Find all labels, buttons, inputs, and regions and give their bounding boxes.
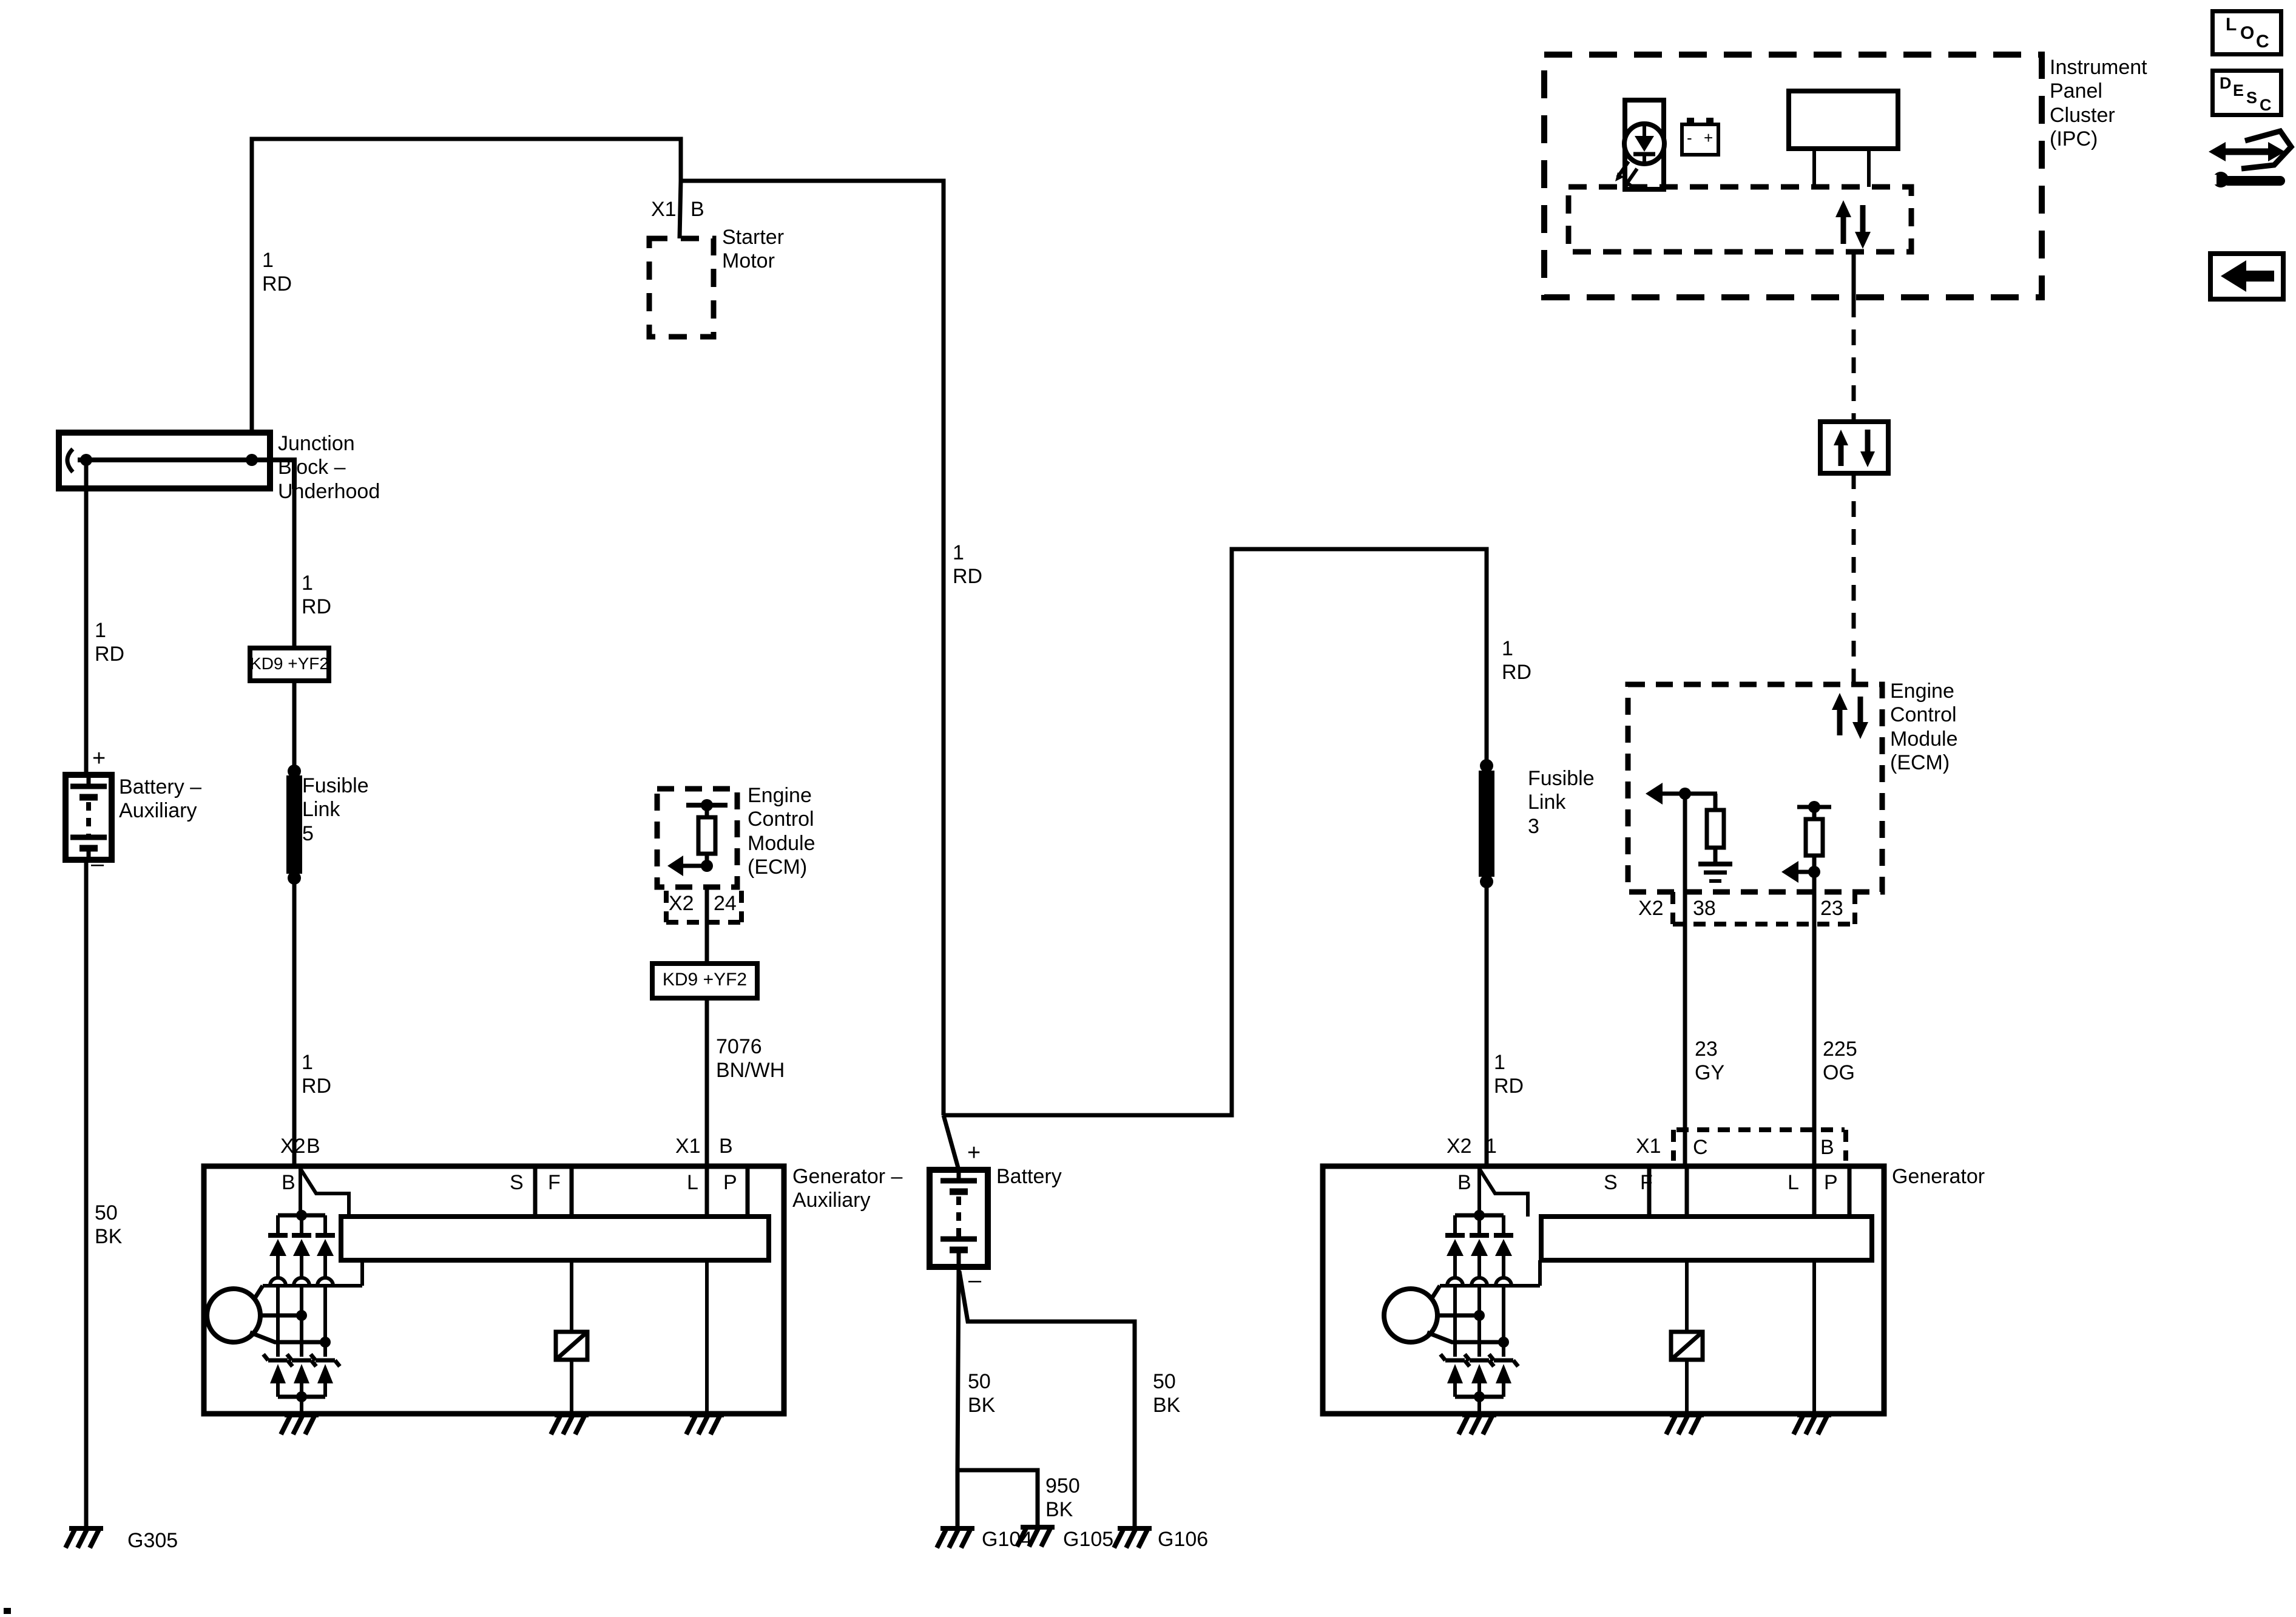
aux-term-f: F bbox=[548, 1171, 561, 1195]
wire-label-50bk-right: 50 BK bbox=[1153, 1370, 1180, 1418]
genaux-x1: X1 bbox=[675, 1135, 701, 1158]
starter-motor-box bbox=[649, 238, 714, 337]
generator-right bbox=[1323, 1166, 1884, 1414]
genr-b: B bbox=[1820, 1136, 1834, 1160]
desc-letter-s: S bbox=[2246, 89, 2257, 107]
wire-label-23gy: 23 GY bbox=[1695, 1038, 1724, 1085]
wire-label-rd-aux: 1 RD bbox=[95, 619, 124, 667]
wire-label-7076: 7076 BN/WH bbox=[716, 1035, 785, 1083]
junction-block-underhood bbox=[59, 433, 294, 489]
aux-term-p: P bbox=[723, 1171, 737, 1195]
r-term-p: P bbox=[1824, 1171, 1838, 1195]
aux-term-s: S bbox=[510, 1171, 524, 1195]
genr-1: 1 bbox=[1485, 1135, 1497, 1158]
generator-auxiliary bbox=[204, 1166, 784, 1414]
ground-label-g105: G105 bbox=[1063, 1528, 1113, 1551]
wire-label-50bk-left: 50 BK bbox=[95, 1201, 122, 1249]
wire-label-rd-main: 1 RD bbox=[953, 541, 982, 589]
kd9-left-label: KD9 +YF2 bbox=[250, 654, 329, 673]
ground-label-g305: G305 bbox=[127, 1529, 178, 1553]
fl3-label: Fusible Link 3 bbox=[1528, 767, 1595, 839]
battery-plus: + bbox=[967, 1139, 981, 1166]
r-term-f: F bbox=[1640, 1171, 1653, 1195]
wire-label-50bk-mid: 50 BK bbox=[968, 1370, 995, 1418]
loc-letter-c: C bbox=[2256, 32, 2269, 52]
genaux-x2: X2 bbox=[280, 1135, 306, 1158]
generator-label: Generator bbox=[1892, 1165, 1985, 1189]
desc-button[interactable]: D E S C bbox=[2210, 69, 2283, 117]
ecmr-x2: X2 bbox=[1638, 897, 1664, 920]
wiring-diagram-page: Instrument Panel Cluster (IPC) Starter M… bbox=[0, 0, 2296, 1617]
diagnostic-tool-icon[interactable] bbox=[2207, 131, 2291, 187]
ecm-left bbox=[657, 789, 737, 887]
wire-label-rd-fl3-top: 1 RD bbox=[1502, 637, 1531, 685]
ipc-label: Instrument Panel Cluster (IPC) bbox=[2050, 56, 2147, 152]
starter-label: Starter Motor bbox=[722, 226, 784, 274]
ecmr-23: 23 bbox=[1820, 897, 1843, 920]
aux-term-l: L bbox=[687, 1171, 698, 1195]
ipc-batt-plus: + bbox=[1704, 129, 1713, 147]
back-arrow-icon[interactable] bbox=[2210, 254, 2283, 299]
ipc-batt-minus: - bbox=[1687, 129, 1692, 147]
instrument-panel-cluster bbox=[1544, 55, 2042, 297]
desc-letter-d: D bbox=[2220, 74, 2232, 93]
genaux-b: B bbox=[306, 1135, 320, 1158]
battery-label: Battery bbox=[996, 1165, 1062, 1189]
generator-aux-label: Generator – Auxiliary bbox=[792, 1165, 902, 1213]
r-term-s: S bbox=[1604, 1171, 1618, 1195]
genr-c: C bbox=[1693, 1136, 1708, 1160]
fusible-link-3-symbol bbox=[1479, 759, 1494, 888]
battery-aux-minus: – bbox=[91, 851, 104, 877]
r-term-l: L bbox=[1788, 1171, 1799, 1195]
artifact-dot bbox=[4, 1608, 11, 1614]
genr-x1: X1 bbox=[1636, 1135, 1661, 1158]
battery-auxiliary-symbol bbox=[66, 775, 112, 860]
wire-label-rd-fl5-top: 1 RD bbox=[302, 572, 331, 619]
starter-b: B bbox=[690, 198, 704, 221]
fusible-link-5-symbol bbox=[286, 765, 302, 885]
genr-x2: X2 bbox=[1447, 1135, 1472, 1158]
genaux-x1b: B bbox=[719, 1135, 733, 1158]
aux-term-b: B bbox=[282, 1171, 295, 1195]
ground-symbols bbox=[66, 1415, 1831, 1548]
loc-button[interactable]: L O C bbox=[2210, 9, 2283, 56]
starter-x1: X1 bbox=[651, 198, 677, 221]
ecm-right-label: Engine Control Module (ECM) bbox=[1890, 680, 1958, 775]
r-term-b: B bbox=[1457, 1171, 1471, 1195]
battery-aux-label: Battery – Auxiliary bbox=[119, 775, 201, 823]
ecml-x2: X2 bbox=[669, 892, 694, 916]
wire-main-trunk bbox=[252, 139, 1487, 1170]
desc-letter-c: C bbox=[2260, 96, 2272, 115]
loc-letter-o: O bbox=[2240, 23, 2254, 44]
wire-label-rd-fl5-bot: 1 RD bbox=[302, 1051, 331, 1099]
battery-symbol bbox=[930, 1170, 988, 1267]
battery-minus: – bbox=[968, 1267, 981, 1294]
wire-ecm-right-columns bbox=[1685, 892, 1814, 1166]
junction-label: Junction Block – Underhood bbox=[278, 432, 380, 504]
desc-letter-e: E bbox=[2233, 81, 2244, 100]
wire-label-225og: 225 OG bbox=[1823, 1038, 1857, 1085]
ground-label-g106: G106 bbox=[1158, 1528, 1208, 1551]
wire-label-950bk: 950 BK bbox=[1045, 1474, 1080, 1522]
ecml-24: 24 bbox=[714, 892, 737, 916]
ground-label-g104: G104 bbox=[982, 1528, 1032, 1551]
kd9-right-label: KD9 +YF2 bbox=[652, 970, 757, 991]
fl5-label: Fusible Link 5 bbox=[302, 774, 369, 846]
battery-aux-plus: + bbox=[92, 745, 106, 772]
serial-data-link bbox=[1820, 252, 1888, 683]
loc-letter-l: L bbox=[2226, 15, 2237, 35]
ecm-left-label: Engine Control Module (ECM) bbox=[748, 784, 815, 880]
ecm-right bbox=[1628, 684, 1882, 892]
wire-label-rd-riser: 1 RD bbox=[262, 249, 292, 297]
wire-label-rd-fl3-bot: 1 RD bbox=[1494, 1051, 1524, 1099]
ecmr-38: 38 bbox=[1693, 897, 1716, 920]
